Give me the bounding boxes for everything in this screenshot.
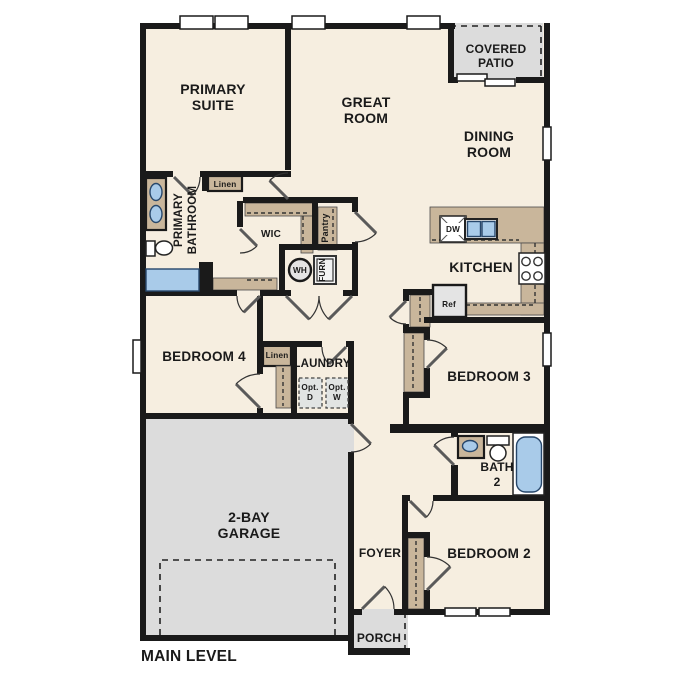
window-icon (543, 333, 551, 366)
opt-washer-label: W (333, 393, 341, 402)
window-icon (292, 16, 325, 29)
great-room-label: ROOM (344, 110, 388, 126)
dishwasher-label: DW (446, 225, 460, 234)
sliding-door-icon (485, 79, 515, 86)
garage-label: 2-BAY (228, 509, 270, 525)
window-icon (133, 340, 141, 373)
toilet-tank-icon (146, 241, 155, 256)
floor-plan: PRIMARY SUITE GREAT ROOM DINING ROOM COV… (0, 0, 687, 687)
porch-label: PORCH (357, 631, 401, 645)
wic-shelf-top (245, 203, 313, 216)
window-icon (445, 608, 476, 616)
bath2-sink-icon (463, 441, 478, 452)
window-icon (215, 16, 248, 29)
window-icon (407, 16, 440, 29)
refrigerator-label: Ref (442, 300, 456, 309)
floor-plan-svg: PRIMARY SUITE GREAT ROOM DINING ROOM COV… (0, 0, 687, 687)
great-room-label: GREAT (342, 94, 391, 110)
bath2-toilet-tank-icon (487, 436, 509, 445)
furnace-label: FURN (318, 258, 327, 282)
wic-shelf-bottom (213, 278, 277, 290)
bath2-label: BATH (480, 460, 513, 474)
bath2-tub-icon (517, 437, 542, 492)
linen-label: Linen (266, 351, 289, 360)
opt-dryer-label: D (307, 393, 313, 402)
wic-label: WIC (261, 229, 281, 240)
plan-level-label: MAIN LEVEL (141, 648, 237, 665)
sliding-door-icon (457, 74, 487, 81)
bath2-label: 2 (494, 475, 501, 489)
kitchen-label: KITCHEN (449, 259, 513, 275)
dining-room-label: DINING (464, 128, 514, 144)
water-heater-label: WH (293, 266, 307, 275)
foyer-label: FOYER (359, 546, 401, 560)
primary-bathroom-label: BATHROOM (187, 186, 199, 254)
window-icon (479, 608, 510, 616)
bedroom3-closet-shelf (404, 333, 424, 392)
opt-dryer-label: Opt. (301, 383, 318, 392)
bedroom3-label: BEDROOM 3 (447, 369, 531, 384)
toilet-bowl-icon (156, 241, 173, 255)
garage-label: GARAGE (218, 525, 281, 541)
bath-sink-icon (150, 206, 162, 223)
linen-label: Linen (214, 180, 237, 189)
dining-room-label: ROOM (467, 144, 511, 160)
primary-bathroom-label: PRIMARY (173, 193, 185, 247)
covered-patio-label: PATIO (478, 56, 514, 70)
bath-sink-icon (150, 184, 162, 201)
primary-suite-label: SUITE (192, 97, 234, 113)
window-icon (180, 16, 213, 29)
covered-patio-label: COVERED (466, 42, 527, 56)
primary-suite-label: PRIMARY (180, 81, 246, 97)
opt-washer-label: Opt. (328, 383, 345, 392)
bedroom4-label: BEDROOM 4 (162, 349, 246, 364)
window-icon (543, 127, 551, 160)
bedroom2-label: BEDROOM 2 (447, 546, 531, 561)
bathtub-icon (146, 269, 199, 291)
laundry-label: LAUNDRY (293, 358, 350, 370)
bath2-toilet-bowl-icon (490, 445, 506, 461)
pantry-label: Pantry (320, 213, 330, 242)
hall-closet-shelf (276, 366, 291, 408)
